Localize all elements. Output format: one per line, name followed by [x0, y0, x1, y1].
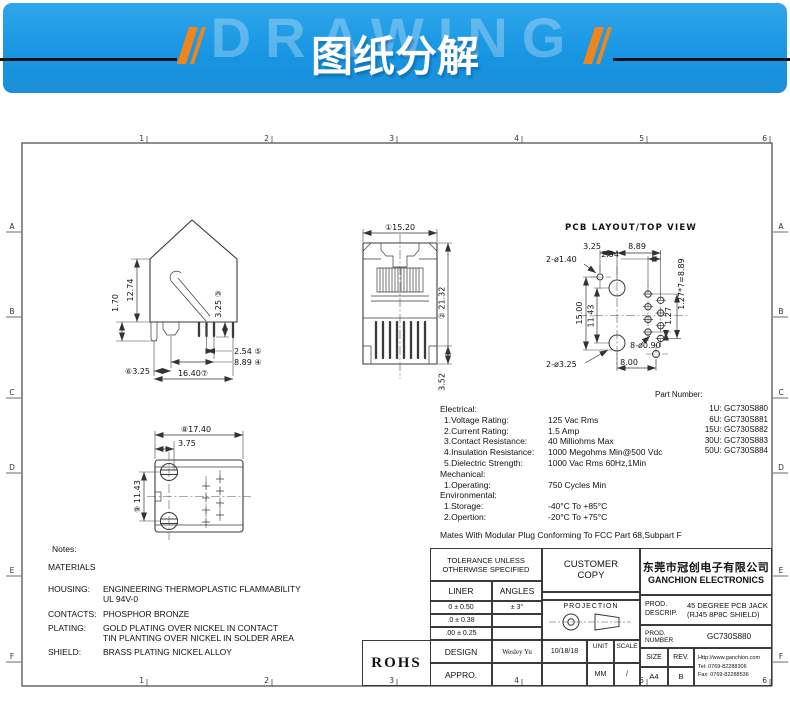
pcb-dim-1-27: 1.27 — [664, 307, 673, 325]
banner-title: 图纸分解 — [3, 23, 787, 84]
zone-row-d-r: D — [778, 463, 784, 472]
banner: DRAWING 图纸分解 — [3, 3, 787, 93]
spec-row: 2.Opertion:-20°C To +75°C — [440, 512, 775, 523]
part-number-item: 15U: GC730S882 — [648, 425, 768, 436]
part-number-item: 6U: GC730S881 — [648, 415, 768, 426]
prod-number-cell: PROD. NUMBER GC730S880 — [640, 625, 772, 648]
rev-label: REV. — [668, 648, 694, 667]
part-number-list: 1U: GC730S880 6U: GC730S881 15U: GC730S8… — [648, 404, 768, 457]
dim-3-75: 3.75 — [178, 439, 196, 448]
mates-footnote: Mates With Modular Plug Conforming To FC… — [440, 530, 682, 541]
tolerance-row-1: 0 ± 0.50 — [430, 601, 492, 614]
rev-value: B — [668, 667, 694, 686]
tolerance-row-2: .0 ± 0.38 — [430, 614, 492, 627]
contact-cell: Http://www.ganchion.com Tel: 0769-822883… — [694, 648, 772, 686]
dim-12-74: 12.74 — [126, 279, 135, 302]
spec-row: 1.Operating:750 Cycles Min — [440, 480, 775, 491]
zone-row-a: A — [9, 222, 15, 231]
dim-2-54: 2.54 ⑤ — [234, 347, 262, 356]
zone-row-e-r: E — [779, 566, 784, 575]
dim-3-25-h: ⑥3.25 — [125, 367, 150, 376]
design-date: 10/18/18 — [542, 640, 587, 663]
shield-label: SHIELD: — [48, 647, 81, 658]
dim-11-43-top: ⑨ 11.43 — [133, 480, 142, 513]
company-name-cn: 东莞市冠创电子有限公司 — [643, 559, 770, 575]
company-tel: Tel: 0769-82288306 — [698, 663, 747, 672]
pcb-layout-view: PCB LAYOUT/TOP VIEW — [546, 223, 697, 371]
zone-col-6: 6 — [762, 134, 767, 143]
descrip-label: DESCRIP. — [645, 610, 687, 619]
zone-row-a-r: A — [778, 222, 784, 231]
spacer-cell — [542, 592, 640, 600]
pcb-dim-pitch: 1.27*7=8.89 — [677, 258, 686, 309]
dim-3-52: 3.52 — [438, 373, 447, 391]
zone-row-c: C — [9, 388, 14, 397]
dim-8-89: 8.89 ④ — [234, 358, 262, 367]
title-block: TOLERANCE UNLESS OTHERWISE SPECIFIED LIN… — [430, 548, 772, 686]
zone-row-f: F — [10, 652, 14, 661]
company-name-en: GANCHION ELECTRONICS — [648, 575, 764, 585]
company-fax: Fax: 0769-82288536 — [698, 671, 749, 680]
zone-col-4: 4 — [514, 134, 519, 143]
appro-name-empty — [492, 663, 542, 686]
company-website: Http://www.ganchion.com — [698, 654, 760, 663]
zone-col-1: 1 — [139, 134, 144, 143]
size-label: SIZE — [640, 648, 668, 667]
notes-title: Notes: — [52, 544, 77, 555]
designer-name: Wesley Yu — [492, 640, 542, 663]
dim-15-20: ①15.20 — [385, 223, 415, 232]
prod-number-label-2: NUMBER — [645, 637, 673, 644]
pcb-dim-3-25: 3.25 — [583, 242, 601, 251]
pcb-dim-2-54: 2.54 — [601, 250, 619, 259]
banner-right-line — [613, 58, 790, 61]
zone-row-c-r: C — [778, 388, 783, 397]
zone-col-2: 2 — [264, 134, 269, 143]
zone-col-5: 5 — [639, 134, 644, 143]
side-view: 12.74 1.70 3.25 ③ 2.54 ⑤ 8.89 ④ ⑥3.25 16… — [111, 220, 262, 379]
housing-value-2: UL 94V-0 — [103, 594, 138, 605]
angle-tolerance-empty-2 — [492, 627, 542, 640]
top-view-outline — [155, 460, 243, 532]
zone-row-b: B — [9, 307, 14, 316]
spec-section-environmental: Environmental: — [440, 490, 775, 501]
part-number-title: Part Number: — [655, 390, 703, 399]
scale-value: / — [614, 663, 640, 686]
pcb-dim-15-00: 15.00 — [575, 302, 584, 325]
dim-1-70: 1.70 — [111, 294, 120, 312]
size-value: A4 — [640, 667, 668, 686]
pcb-dim-pins: 8-ø0.90 — [630, 341, 661, 350]
zone-row-b-r: B — [778, 307, 783, 316]
dim-16-40: 16.40⑦ — [178, 369, 208, 378]
appro-label: APPRO. — [430, 663, 492, 686]
pcb-dim-8-00: 8.00 — [620, 358, 638, 367]
pcb-view-title: PCB LAYOUT/TOP VIEW — [565, 223, 697, 233]
spec-row: 5.Dielectric Strength:1000 Vac Rms 60Hz,… — [440, 458, 775, 469]
front-view: ①15.20 ② 21.32 3.52 — [363, 223, 452, 391]
unit-label: UNIT — [587, 640, 614, 663]
first-angle-projection-icon — [547, 610, 635, 634]
plating-label: PLATING: — [48, 623, 86, 634]
spec-section-mechanical: Mechanical: — [440, 469, 775, 480]
spec-row: 1.Storage:-40°C To +85°C — [440, 501, 775, 512]
materials-title: MATERIALS — [48, 562, 96, 573]
scale-label: SCALE — [614, 640, 640, 663]
company-cell: 东莞市冠创电子有限公司 GANCHION ELECTRONICS — [640, 548, 772, 595]
unit-value: MM — [587, 663, 614, 686]
tolerance-header: TOLERANCE UNLESS OTHERWISE SPECIFIED — [430, 548, 542, 581]
projection-cell: PROJECTION — [542, 600, 640, 640]
prod-descrip-value-2: (RJ45 8P8C SHIELD) — [687, 610, 760, 619]
zone-col-2b: 2 — [264, 676, 269, 685]
top-view: ⑧17.40 3.75 ⑨ 11.43 — [133, 425, 251, 540]
pcb-dim-hole-big: 2-ø3.25 — [546, 360, 577, 369]
design-label: DESIGN — [430, 640, 492, 663]
drawing-sheet: DRAWING 图纸分解 1 2 3 4 5 6 1 2 3 4 5 6 — [0, 0, 790, 712]
customer-copy: CUSTOMER COPY — [542, 548, 640, 592]
contacts-label: CONTACTS: — [48, 609, 96, 620]
housing-label: HOUSING: — [48, 584, 90, 595]
prod-number-value: GC730S880 — [687, 632, 771, 641]
prod-label: PROD. — [645, 601, 687, 610]
zone-row-f-r: F — [779, 652, 783, 661]
dim-3-25-v: 3.25 ③ — [214, 290, 223, 318]
appro-date-empty — [542, 663, 587, 686]
projection-label: PROJECTION — [563, 603, 618, 610]
dim-21-32: ② 21.32 — [438, 287, 447, 320]
angle-tolerance-empty — [492, 614, 542, 627]
contacts-value: PHOSPHOR BRONZE — [103, 609, 189, 620]
pcb-dim-8-89: 8.89 — [628, 242, 646, 251]
zone-col-3: 3 — [389, 134, 394, 143]
part-number-item: 50U: GC730S884 — [648, 446, 768, 457]
zone-col-1b: 1 — [139, 676, 144, 685]
prod-descrip-value-1: 45 DEGREE PCB JACK — [687, 601, 768, 610]
tolerance-liner-header: LINER — [430, 581, 492, 601]
dim-17-40: ⑧17.40 — [181, 425, 211, 434]
rohs-mark: ROHS — [362, 640, 431, 686]
pcb-dim-11-43: 11.43 — [587, 305, 596, 328]
angle-tolerance: ± 3° — [492, 601, 542, 614]
shield-value: BRASS PLATING NICKEL ALLOY — [103, 647, 232, 658]
part-number-item: 30U: GC730S883 — [648, 436, 768, 447]
tolerance-angles-header: ANGLES — [492, 581, 542, 601]
banner-left-line — [0, 58, 177, 61]
part-number-item: 1U: GC730S880 — [648, 404, 768, 415]
tolerance-row-3: .00 ± 0.25 — [430, 627, 492, 640]
prod-descrip-cell: PROD.45 DEGREE PCB JACK DESCRIP.(RJ45 8P… — [640, 595, 772, 625]
pcb-dim-hole-small: 2-ø1.40 — [546, 255, 577, 264]
plating-value-2: TIN PLANTING OVER NICKEL IN SOLDER AREA — [103, 633, 294, 644]
zone-row-d: D — [9, 463, 15, 472]
zone-row-e: E — [10, 566, 15, 575]
prod-number-label-1: PROD. — [645, 630, 666, 637]
